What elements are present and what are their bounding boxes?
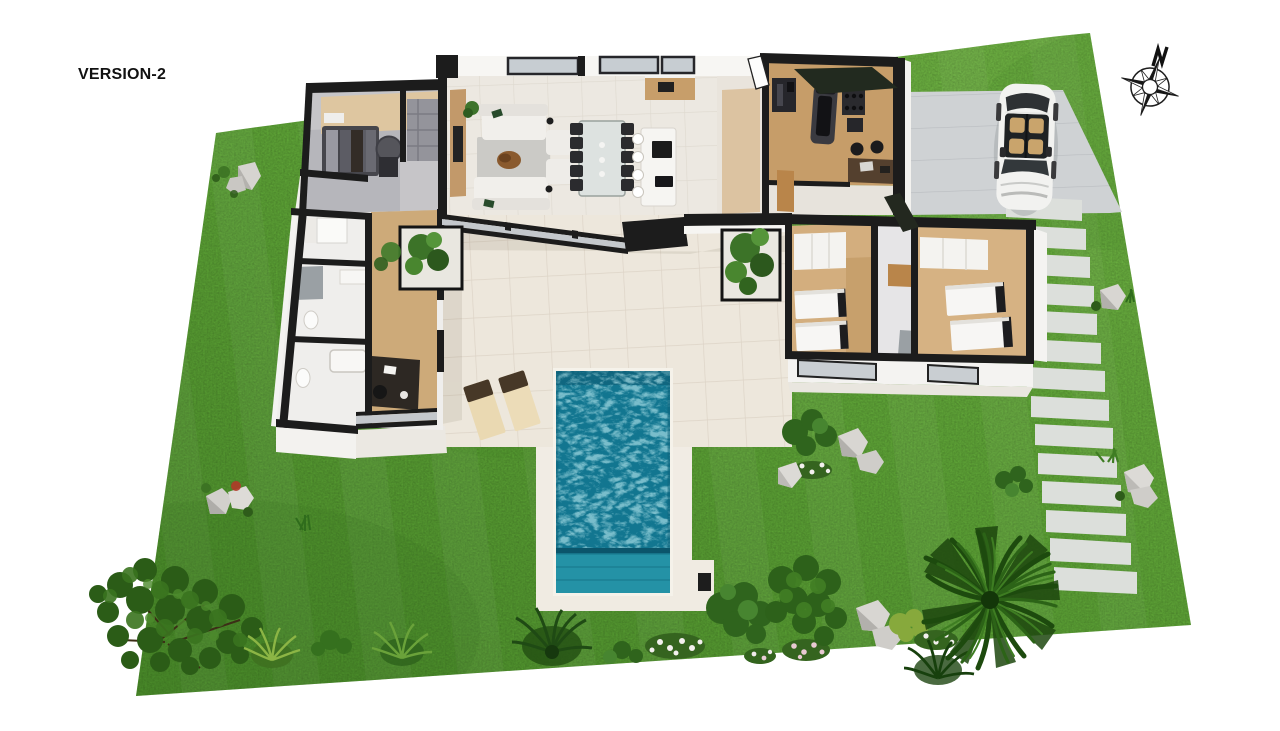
svg-text:VERSION-2: VERSION-2: [78, 66, 166, 83]
